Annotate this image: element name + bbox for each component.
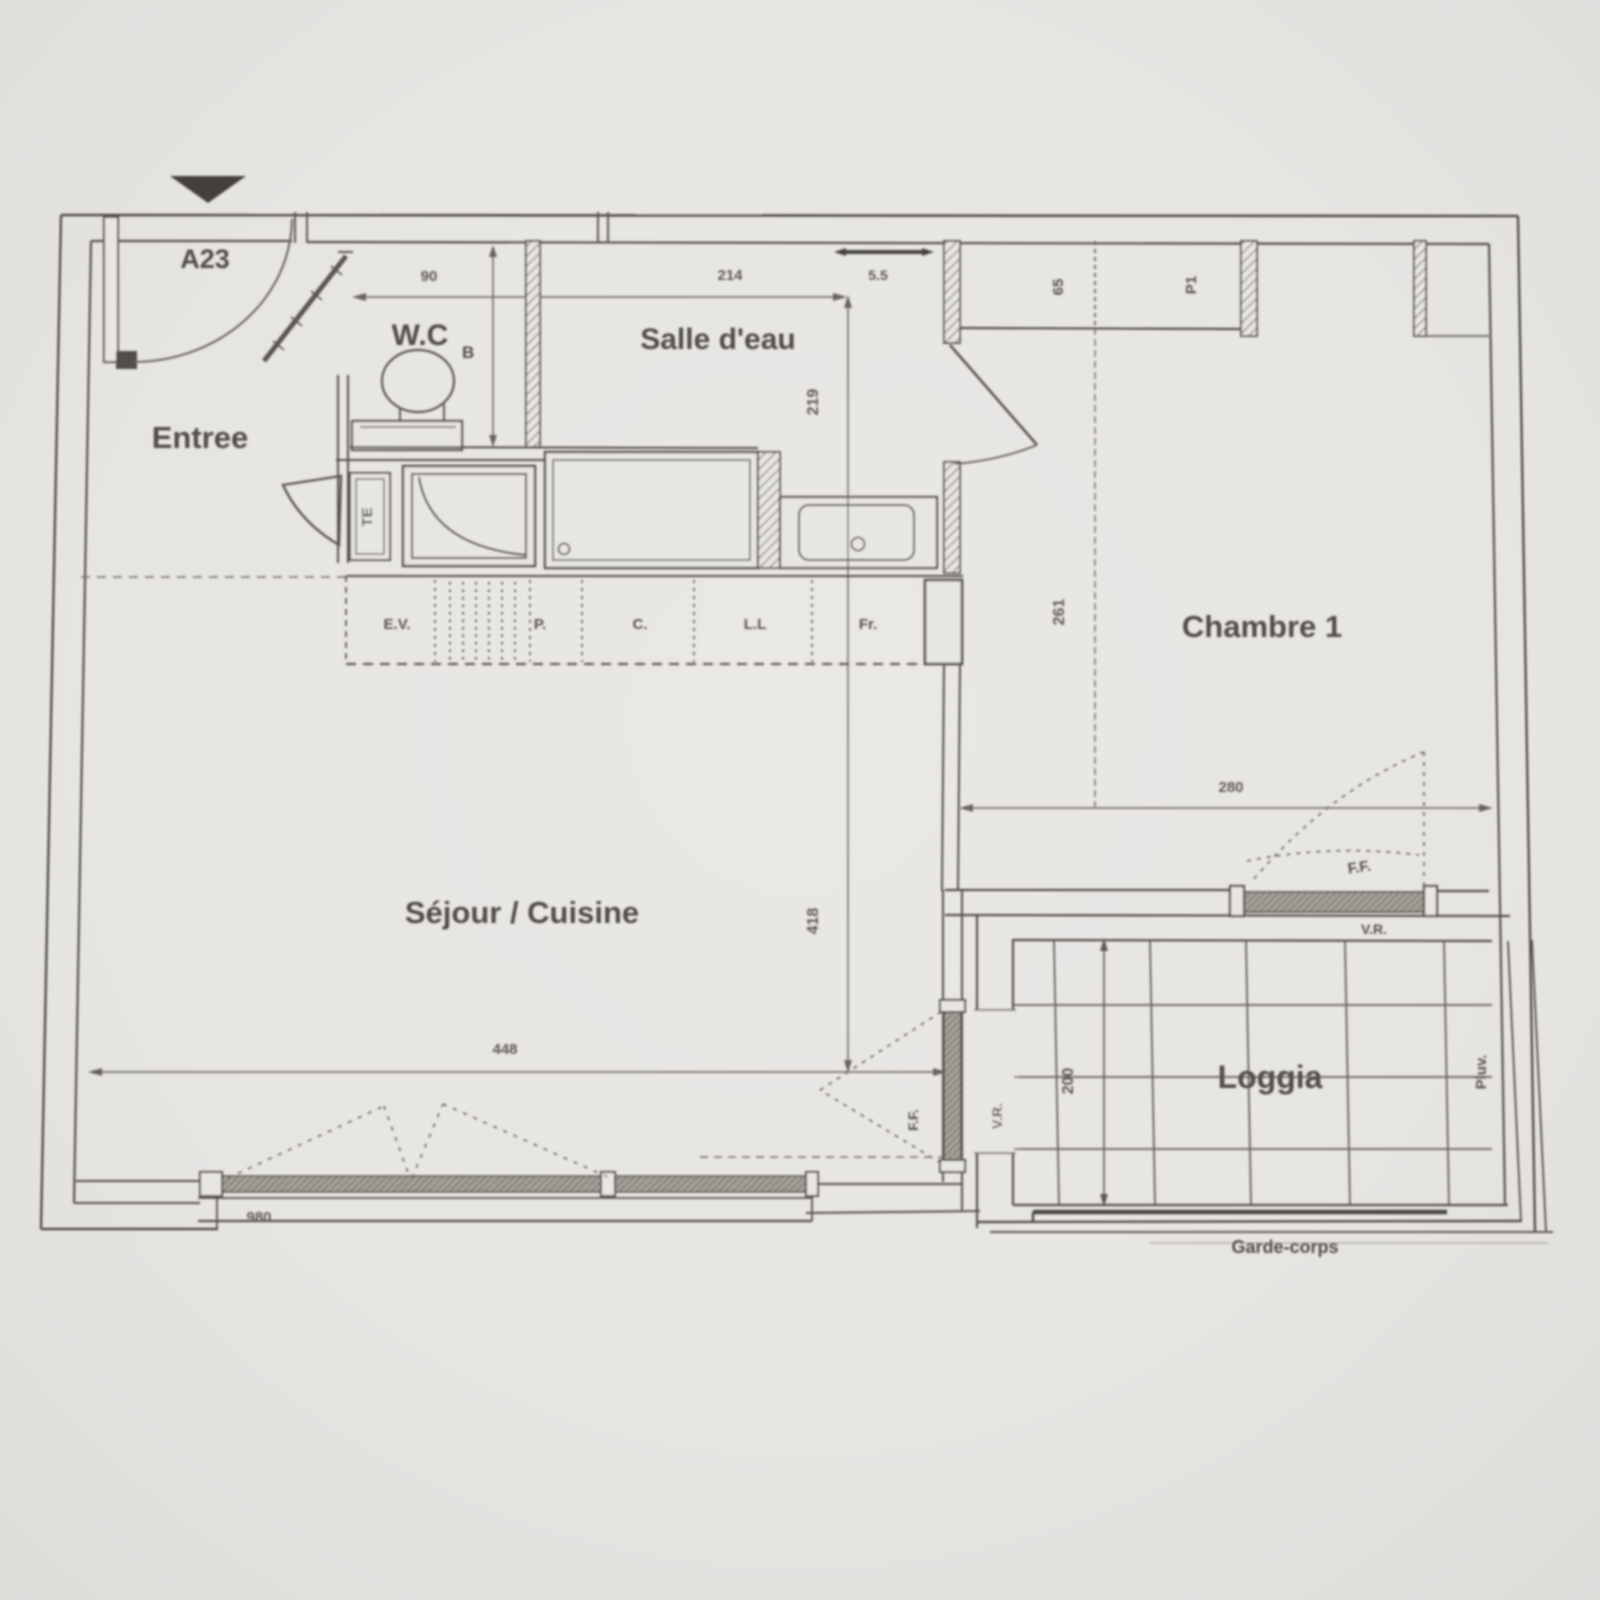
svg-text:65: 65 <box>1050 279 1067 296</box>
svg-text:261: 261 <box>1051 599 1068 626</box>
svg-text:280: 280 <box>1218 779 1243 796</box>
svg-text:980: 980 <box>246 1209 271 1226</box>
svg-text:TE: TE <box>359 507 376 526</box>
svg-text:V.R.: V.R. <box>989 1103 1005 1129</box>
svg-text:Pluv.: Pluv. <box>1473 1055 1490 1090</box>
svg-text:B: B <box>462 343 474 362</box>
svg-text:Salle d'eau: Salle d'eau <box>640 323 796 356</box>
svg-text:P.: P. <box>534 616 546 633</box>
svg-text:Chambre 1: Chambre 1 <box>1182 609 1342 644</box>
svg-text:P1: P1 <box>1183 276 1200 294</box>
svg-text:E.V.: E.V. <box>384 616 411 633</box>
svg-text:219: 219 <box>805 389 822 416</box>
svg-text:5.5: 5.5 <box>868 267 888 283</box>
svg-text:200: 200 <box>1060 1068 1077 1095</box>
svg-text:F.F.: F.F. <box>905 1109 921 1131</box>
svg-text:W.C: W.C <box>392 319 449 352</box>
svg-text:A23: A23 <box>180 244 230 274</box>
svg-text:Entree: Entree <box>152 420 248 455</box>
svg-text:214: 214 <box>717 267 743 284</box>
svg-text:V.R.: V.R. <box>1361 921 1387 937</box>
svg-text:90: 90 <box>421 268 438 285</box>
svg-text:C.: C. <box>633 616 648 633</box>
svg-text:418: 418 <box>805 908 822 935</box>
svg-text:448: 448 <box>492 1041 517 1058</box>
svg-text:F.F.: F.F. <box>1347 858 1372 878</box>
svg-text:Séjour / Cuisine: Séjour / Cuisine <box>405 895 639 930</box>
svg-text:Fr.: Fr. <box>859 616 877 633</box>
svg-text:L.L: L.L <box>744 616 767 633</box>
svg-text:Garde-corps: Garde-corps <box>1231 1237 1338 1257</box>
svg-text:Loggia: Loggia <box>1218 1059 1323 1095</box>
